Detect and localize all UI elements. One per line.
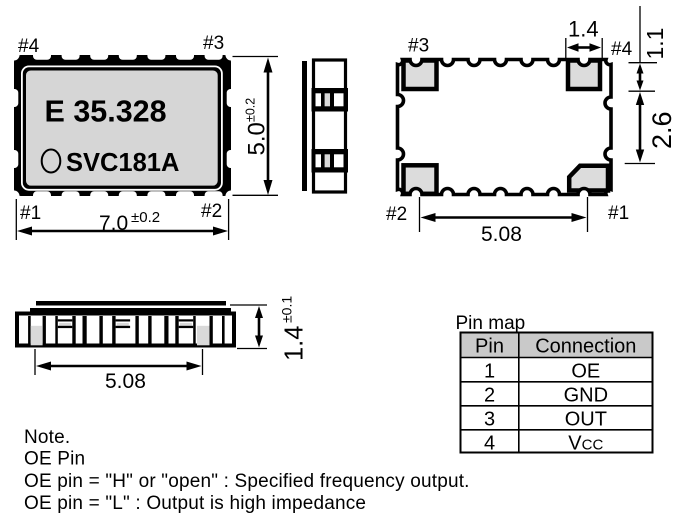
svg-text:OUT: OUT bbox=[565, 409, 607, 431]
svg-text:#3: #3 bbox=[203, 33, 224, 54]
svg-text:SVC181A: SVC181A bbox=[66, 149, 179, 177]
svg-text:1.1: 1.1 bbox=[642, 28, 668, 60]
svg-text:OE Pin: OE Pin bbox=[24, 449, 85, 470]
svg-text:5.08: 5.08 bbox=[481, 223, 522, 246]
svg-text:#4: #4 bbox=[611, 39, 633, 60]
svg-text:1: 1 bbox=[484, 361, 495, 383]
svg-text:OE: OE bbox=[571, 361, 600, 383]
svg-text:#4: #4 bbox=[18, 36, 40, 57]
svg-text:OE pin = "H" or "open" : Speci: OE pin = "H" or "open" : Specified frequ… bbox=[24, 471, 470, 492]
svg-text:2: 2 bbox=[484, 385, 495, 407]
svg-text:Note.: Note. bbox=[24, 427, 70, 448]
svg-text:VCC: VCC bbox=[568, 433, 603, 455]
svg-text:±0.1: ±0.1 bbox=[279, 296, 295, 323]
svg-text:1.4: 1.4 bbox=[568, 17, 599, 42]
svg-text:#1: #1 bbox=[608, 203, 629, 224]
svg-text:Connection: Connection bbox=[535, 336, 636, 358]
svg-text:#2: #2 bbox=[386, 204, 407, 225]
svg-text:#1: #1 bbox=[20, 203, 41, 224]
svg-text:Pin: Pin bbox=[475, 336, 504, 358]
svg-text:E 35.328: E 35.328 bbox=[45, 95, 167, 129]
svg-text:5.0: 5.0 bbox=[244, 122, 271, 155]
svg-text:#3: #3 bbox=[408, 36, 429, 57]
svg-text:5.08: 5.08 bbox=[105, 370, 146, 393]
svg-text:±0.2: ±0.2 bbox=[131, 209, 160, 226]
svg-text:#2: #2 bbox=[201, 201, 222, 222]
svg-text:3: 3 bbox=[484, 409, 495, 431]
svg-text:4: 4 bbox=[484, 433, 495, 455]
svg-text:1.4: 1.4 bbox=[281, 326, 309, 361]
svg-text:OE pin = "L" : Output is high: OE pin = "L" : Output is high impedance bbox=[24, 493, 366, 514]
svg-text:Pin map: Pin map bbox=[456, 313, 526, 334]
svg-text:±0.2: ±0.2 bbox=[244, 98, 258, 122]
svg-text:7.0: 7.0 bbox=[99, 212, 128, 235]
svg-text:2.6: 2.6 bbox=[647, 111, 677, 149]
svg-text:GND: GND bbox=[564, 385, 608, 407]
